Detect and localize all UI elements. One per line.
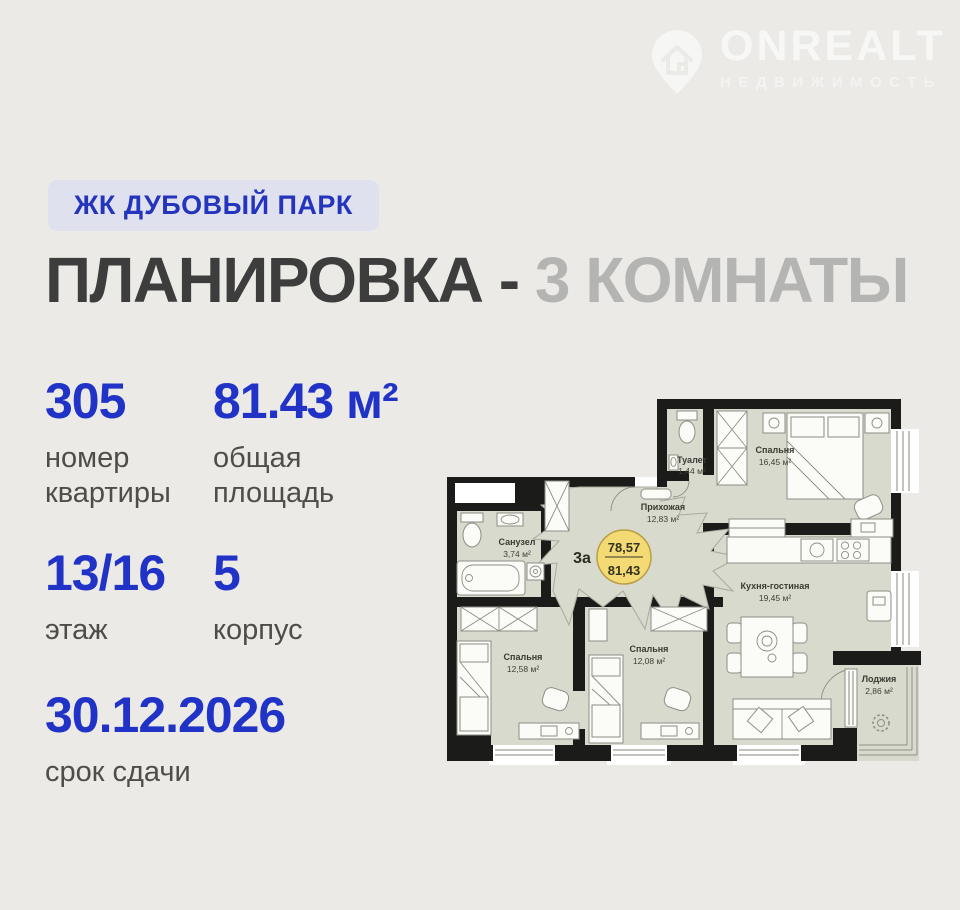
apartment-number-value: 305 [45,376,171,426]
fridge-icon [867,591,891,621]
room-label: Спальня [630,644,669,654]
room-area: 16,45 м² [759,457,791,467]
shaft-niche [455,483,515,503]
stat-apartment-number: 305 номер квартиры [45,376,171,512]
total-area-value: 81.43 м² [213,376,398,426]
apartment-number-label: номер квартиры [45,441,171,512]
stat-floor: 13/16 этаж [45,548,165,648]
title-primary: ПЛАНИРОВКА - [45,244,535,316]
room-area: 2,86 м² [865,686,893,696]
room-label: Прихожая [641,502,685,512]
stat-building: 5 корпус [213,548,303,648]
floor-label: этаж [45,613,165,648]
doormat-icon [641,489,671,499]
total-area-label: общая площадь [213,441,398,512]
room-area: 12,58 м² [507,664,539,674]
room-label: Спальня [756,445,795,455]
toilet-icon [679,421,695,443]
room-label: Кухня-гостиная [741,581,810,591]
stat-completion-date: 30.12.2026 срок сдачи [45,690,285,790]
room-label: Санузел [498,537,535,547]
room-label: Спальня [504,652,543,662]
brand-name: ONREALT [720,24,946,69]
floor-value: 13/16 [45,548,165,598]
onrealt-watermark: ONREALT НЕДВИЖИМОСТЬ [650,24,946,98]
room-label: Лоджия [862,674,897,684]
room-area: 19,45 м² [759,593,791,603]
room-area: 1,44 м² [678,466,706,476]
listing-card: ONREALT НЕДВИЖИМОСТЬ ЖК ДУБОВЫЙ ПАРК ПЛА… [0,0,960,910]
room-area: 3,74 м² [503,549,531,559]
completion-date-label: срок сдачи [45,755,285,790]
stove-icon [837,539,869,561]
building-value: 5 [213,548,303,598]
toilet-icon [463,523,481,547]
washing-machine-icon [527,563,544,580]
living-area-value: 78,57 [608,540,641,555]
brand-tagline: НЕДВИЖИМОСТЬ [720,74,946,91]
room-area: 12,08 м² [633,656,665,666]
total-area-value: 81,43 [608,563,641,578]
completion-date-value: 30.12.2026 [45,690,285,740]
unit-type-label: 3а [573,550,591,567]
page-title: ПЛАНИРОВКА - 3 КОМНАТЫ [45,243,908,317]
room-area: 12,83 м² [647,514,679,524]
project-badge: ЖК ДУБОВЫЙ ПАРК [48,180,379,231]
stat-total-area: 81.43 м² общая площадь [213,376,398,512]
dining-table-icon [741,617,793,677]
building-label: корпус [213,613,303,648]
title-secondary: 3 КОМНАТЫ [535,244,908,316]
floorplan-drawing: Туалет 1,44 м² Спальня 16,45 м² Прихожая… [445,393,925,765]
house-pin-icon [650,28,704,98]
room-label: Туалет [677,455,708,465]
